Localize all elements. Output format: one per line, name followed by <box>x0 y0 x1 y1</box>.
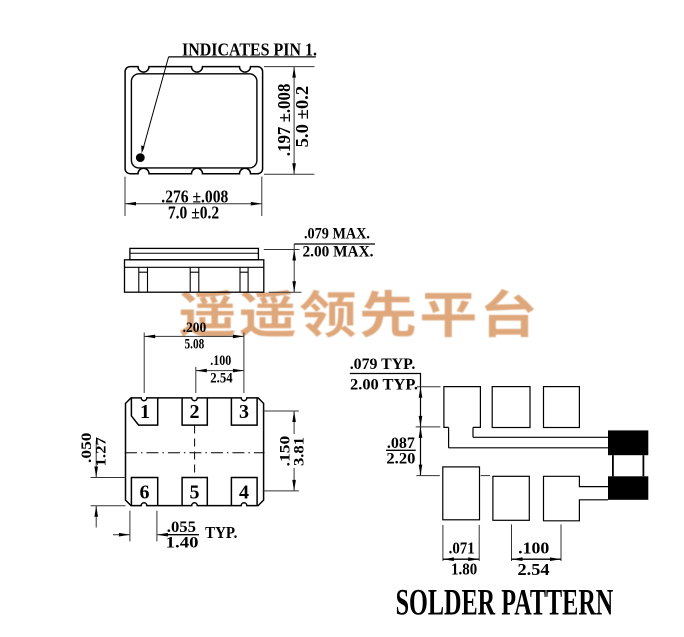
svg-text:.100: .100 <box>518 538 549 557</box>
svg-text:7.0 ±0.2: 7.0 ±0.2 <box>168 203 219 223</box>
svg-text:2.00 TYP.: 2.00 TYP. <box>350 376 418 393</box>
svg-text:5: 5 <box>190 482 200 504</box>
svg-text:6: 6 <box>140 482 150 504</box>
svg-text:3: 3 <box>239 401 249 423</box>
svg-text:SOLDER PATTERN: SOLDER PATTERN <box>396 583 614 624</box>
svg-text:.200: .200 <box>183 320 207 336</box>
svg-text:.100: .100 <box>210 353 231 369</box>
svg-text:1: 1 <box>140 401 150 423</box>
svg-text:3.81: 3.81 <box>292 437 308 466</box>
svg-text:2.54: 2.54 <box>518 560 551 579</box>
svg-text:1.40: 1.40 <box>166 535 199 552</box>
svg-text:2.54: 2.54 <box>210 370 232 386</box>
svg-text:1.80: 1.80 <box>451 559 477 578</box>
svg-text:5.0 ±0.2: 5.0 ±0.2 <box>292 86 312 148</box>
svg-text:TYP.: TYP. <box>205 523 237 542</box>
svg-text:2.00 MAX.: 2.00 MAX. <box>303 244 374 261</box>
svg-text:.079 TYP.: .079 TYP. <box>350 356 416 373</box>
svg-text:.050: .050 <box>79 433 95 464</box>
svg-text:2.20: 2.20 <box>386 450 415 467</box>
svg-text:.079 MAX.: .079 MAX. <box>304 226 370 243</box>
svg-text:4: 4 <box>239 482 249 504</box>
svg-text:5.08: 5.08 <box>185 336 205 352</box>
svg-text:1.27: 1.27 <box>94 437 110 466</box>
svg-text:.071: .071 <box>449 538 475 557</box>
svg-text:2: 2 <box>190 401 200 423</box>
svg-text:.197 ±.008: .197 ±.008 <box>274 84 294 157</box>
